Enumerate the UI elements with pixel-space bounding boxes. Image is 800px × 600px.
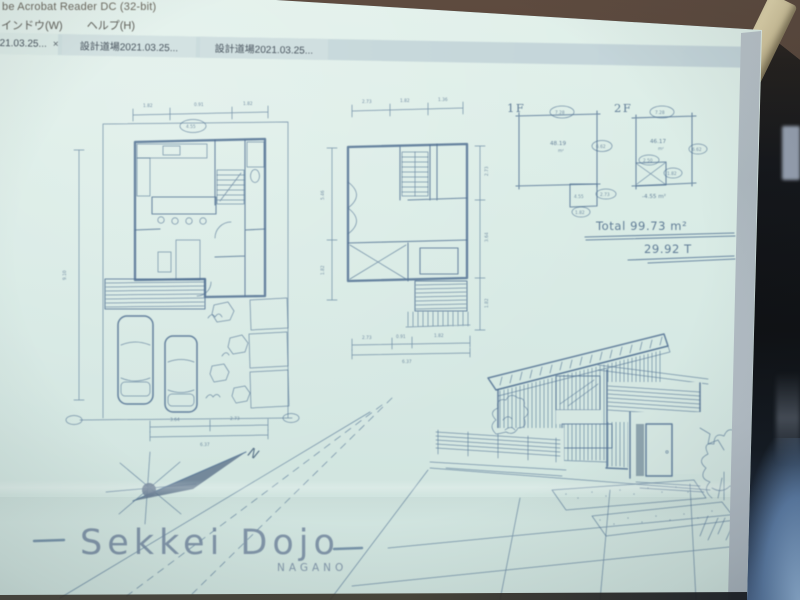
svg-text:2.73: 2.73 [362, 335, 372, 341]
floor-plan-1f: 9.10 1.82 0.91 1.82 4.55 [62, 101, 299, 448]
svg-text:1.82: 1.82 [667, 171, 677, 177]
svg-text:5.46: 5.46 [320, 190, 326, 200]
svg-text:6.37: 6.37 [402, 359, 412, 365]
svg-text:6.37: 6.37 [200, 442, 210, 448]
area-diagram-1f: 1F 7.28 6.62 2.73 1.82 48.19 m² 4.55 [507, 101, 616, 217]
svg-text:1F: 1F [507, 101, 525, 115]
area-diagram-2f: 2F 7.28 6.62 2.50 1.82 46.17 m² -4.55 m² [614, 101, 707, 200]
svg-text:7.28: 7.28 [655, 110, 665, 116]
floor-plan-2f: 2.73 1.82 1.36 [320, 97, 490, 365]
svg-text:2.73: 2.73 [484, 166, 490, 176]
svg-text:4.55: 4.55 [574, 194, 584, 200]
north-label: N [245, 445, 261, 463]
svg-text:3.64: 3.64 [170, 417, 180, 423]
svg-text:1.82: 1.82 [434, 333, 444, 339]
background-panel [782, 126, 800, 180]
svg-text:0.91: 0.91 [194, 102, 204, 108]
window-light-glow [742, 438, 800, 600]
svg-text:7.28: 7.28 [555, 110, 565, 116]
svg-text:9.10: 9.10 [62, 270, 68, 280]
svg-text:2F: 2F [614, 101, 632, 115]
svg-text:1.82: 1.82 [243, 101, 253, 107]
svg-text:6.62: 6.62 [692, 147, 702, 153]
svg-text:2.73: 2.73 [600, 192, 610, 198]
svg-text:1.82: 1.82 [400, 98, 410, 104]
svg-text:4.55: 4.55 [186, 124, 196, 130]
svg-text:Total 99.73 m²: Total 99.73 m² [595, 219, 687, 233]
svg-text:1.82: 1.82 [484, 298, 490, 308]
svg-text:1.82: 1.82 [320, 265, 326, 275]
svg-text:3.64: 3.64 [484, 232, 490, 242]
svg-text:-4.55 m²: -4.55 m² [642, 193, 666, 200]
signature-name: Sekkei Dojo [80, 523, 340, 563]
svg-text:29.92 T: 29.92 T [644, 242, 692, 256]
svg-text:1.82: 1.82 [143, 103, 153, 109]
signature: Sekkei Dojo NAGANO [34, 523, 362, 574]
svg-text:1.36: 1.36 [438, 97, 448, 103]
projector-screen: be Acrobat Reader DC (32-bit) インドウ(W) ヘル… [0, 0, 800, 600]
photo-of-projection: be Acrobat Reader DC (32-bit) インドウ(W) ヘル… [0, 0, 800, 600]
svg-text:1.82: 1.82 [575, 210, 585, 216]
screen-dim-band [0, 497, 800, 523]
svg-text:2.50: 2.50 [643, 158, 653, 164]
svg-text:m²: m² [658, 147, 664, 152]
total-area-note: Total 99.73 m² 29.92 T [585, 219, 735, 263]
svg-text:46.17: 46.17 [650, 139, 666, 145]
svg-text:6.62: 6.62 [596, 144, 606, 150]
svg-text:2.73: 2.73 [230, 416, 240, 422]
svg-text:48.19: 48.19 [550, 141, 566, 147]
svg-text:0.91: 0.91 [396, 334, 406, 340]
svg-text:2.73: 2.73 [362, 99, 372, 105]
svg-text:m²: m² [558, 149, 564, 154]
screen-light-band [0, 480, 800, 495]
signature-sub: NAGANO [277, 562, 347, 574]
